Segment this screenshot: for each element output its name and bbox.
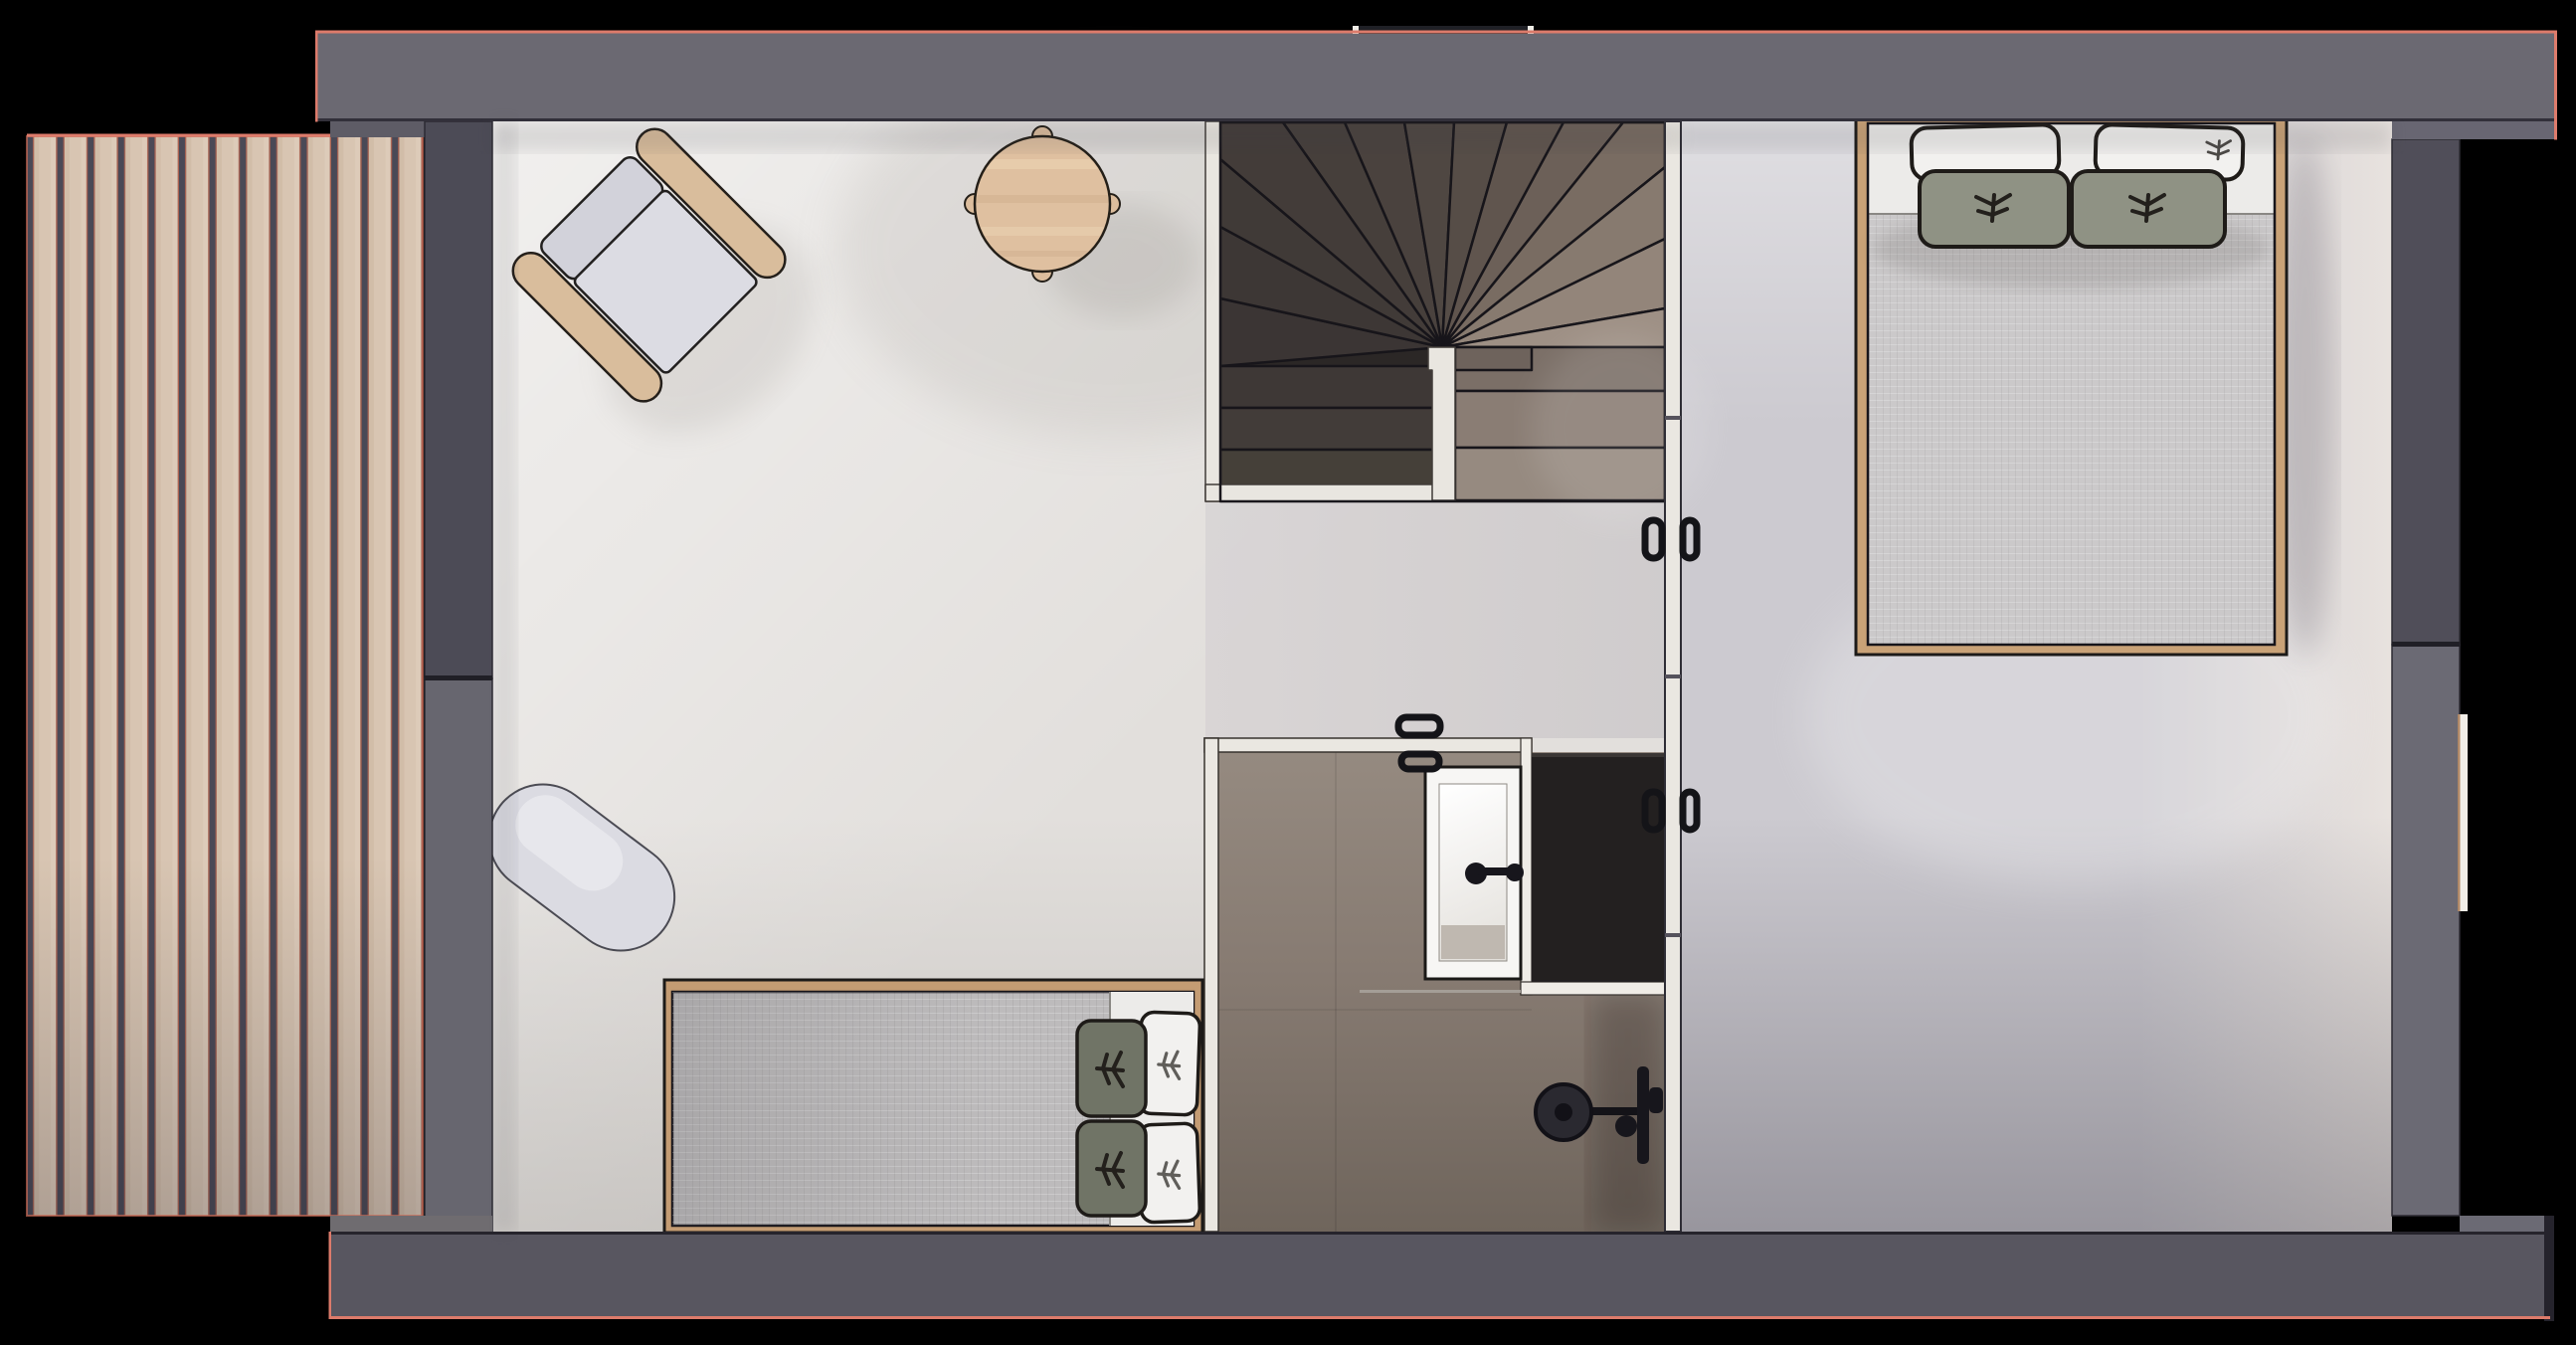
stair-wall-left: [1205, 121, 1220, 501]
panel-frame-bottom: [1521, 982, 1665, 995]
terrace-deck: [27, 134, 423, 1217]
stair-tread: [1220, 408, 1433, 450]
right-wall-glazed: [2392, 645, 2460, 1216]
window-frame-line: [2458, 714, 2461, 911]
stair-fan: [1220, 122, 1665, 366]
left-wall-contact-shadow: [492, 121, 516, 1232]
band-under-deck: [330, 1216, 492, 1234]
bathroom-wall-left: [1204, 738, 1218, 1232]
winder-staircase: [1205, 121, 1711, 522]
outline-bottom: [330, 1316, 2550, 1319]
dark-vanity-panel: [1532, 753, 1665, 982]
bottom-wall-band: [330, 1232, 2552, 1316]
outline-top-left: [315, 31, 318, 122]
hall-shade: [1205, 502, 1665, 738]
top-wall-contact-shadow: [492, 121, 1681, 151]
bathroom-wall-top: [1204, 738, 1532, 752]
stair-newel-post: [1428, 347, 1455, 500]
single-bed: [664, 980, 1202, 1233]
door-joint: [1665, 674, 1681, 678]
shower-bracket-icon: [1649, 1087, 1663, 1113]
shower-tray: [1425, 767, 1524, 979]
top-band-inner-edge: [316, 118, 2556, 121]
outline-bottom-left: [329, 1232, 332, 1319]
band-right-end-cap: [2544, 1216, 2554, 1321]
panel-top-edge: [1532, 753, 1665, 757]
bathroom: [1204, 717, 1665, 1232]
bottom-band-right-step: [2460, 1216, 2552, 1232]
stair-highlight: [1532, 333, 1711, 522]
door-joint: [1665, 416, 1681, 420]
right-wall-upper: [2392, 139, 2460, 645]
stair-tread: [1220, 366, 1433, 408]
door-joint: [1665, 933, 1681, 937]
duvet-shade: [672, 992, 995, 1226]
panel-frame-left: [1521, 738, 1532, 995]
top-wall-contact-shadow: [1681, 121, 2392, 151]
shower-valve-icon: [1615, 1115, 1637, 1137]
window-right-wall: [2460, 714, 2468, 911]
rain-head-center-icon: [1555, 1103, 1572, 1121]
double-bed: [1856, 117, 2287, 655]
outline-top-right: [2554, 31, 2557, 140]
stair-wall-bottom: [1205, 484, 1444, 501]
deck-shadow-overlay: [27, 136, 423, 1216]
wall-strip-above-deck: [330, 121, 425, 137]
top-wall-band: [316, 33, 2556, 121]
bottom-band-inner-edge: [330, 1232, 2552, 1235]
floor-plan-canvas: [0, 0, 2576, 1345]
shower-riser-icon: [1637, 1066, 1649, 1164]
shower-drain-line: [1360, 990, 1521, 993]
stair-tread-step: [1455, 347, 1532, 370]
tray-floor: [1441, 925, 1505, 959]
outline-top: [315, 31, 2557, 34]
left-wall-glazed: [425, 678, 492, 1234]
left-wall-joint: [425, 675, 492, 680]
top-band-right-step: [2392, 121, 2556, 139]
stair-tread: [1220, 450, 1433, 486]
faucet-base-icon: [1506, 864, 1524, 881]
left-wall-upper: [425, 121, 492, 678]
right-wall-joint: [2392, 642, 2460, 647]
